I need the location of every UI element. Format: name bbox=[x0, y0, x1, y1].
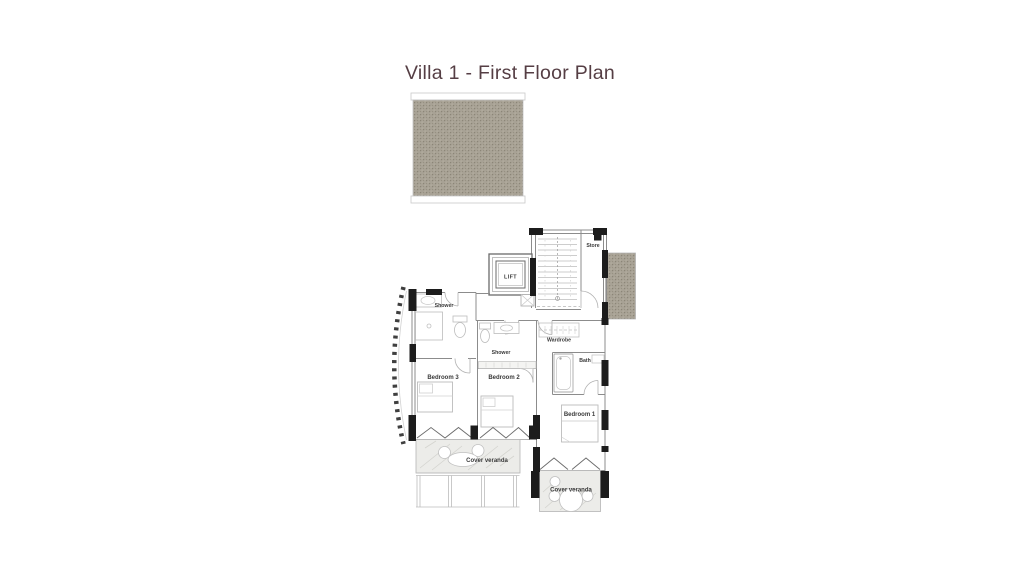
bedroom2-bed bbox=[481, 396, 513, 427]
stairs bbox=[538, 237, 577, 301]
veranda-right-label: Cover veranda bbox=[550, 488, 592, 494]
floor-plan-drawing: LIFT Store Shower Shower Wardrobe Bath B… bbox=[0, 0, 1024, 576]
store-label: Store bbox=[586, 243, 599, 249]
veranda-left-label: Cover veranda bbox=[466, 458, 508, 464]
bedroom3-bed bbox=[418, 382, 453, 412]
floor-plan-page: Villa 1 - First Floor Plan bbox=[0, 0, 1024, 576]
bedroom1-label: Bedroom 1 bbox=[564, 412, 596, 418]
bedroom1-bed bbox=[562, 405, 599, 442]
bedroom2-closet bbox=[479, 362, 537, 369]
bedroom2-label: Bedroom 2 bbox=[488, 375, 520, 381]
bedroom3-label: Bedroom 3 bbox=[427, 375, 459, 381]
bath-label: Bath bbox=[579, 358, 591, 364]
shower-room-top bbox=[416, 294, 468, 340]
shower-top-label: Shower bbox=[435, 303, 454, 309]
open-terrace bbox=[416, 473, 520, 507]
exterior-roof-strip bbox=[606, 253, 636, 319]
wardrobe-area bbox=[539, 323, 579, 337]
curved-louvre-screen bbox=[394, 287, 406, 444]
door-arcs bbox=[445, 293, 598, 395]
pergola-roof-panel bbox=[411, 93, 525, 203]
store-door-arc bbox=[581, 291, 598, 308]
lift-label: LIFT bbox=[504, 275, 517, 281]
cover-veranda-left bbox=[416, 440, 520, 474]
shower-mid-label: Shower bbox=[492, 350, 511, 356]
shower-room-mid bbox=[480, 323, 520, 343]
wardrobe-label: Wardrobe bbox=[547, 338, 571, 344]
